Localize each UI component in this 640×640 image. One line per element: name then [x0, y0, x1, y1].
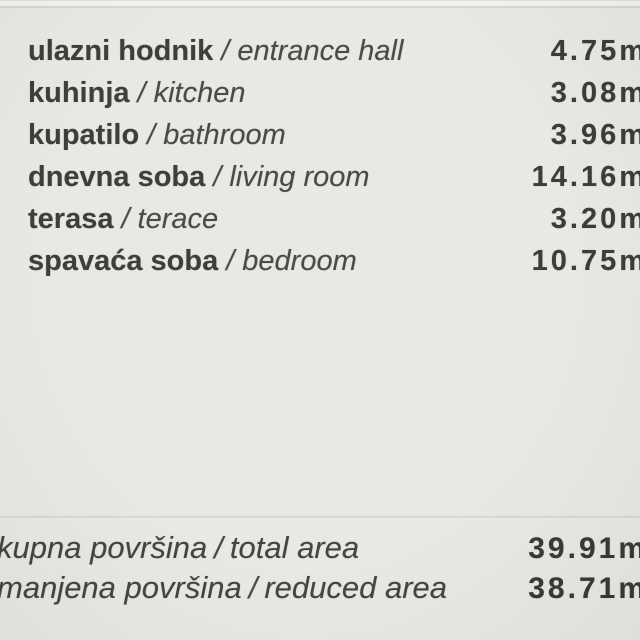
room-name-serbian: kuhinja	[28, 72, 130, 114]
room-name-english: bathroom	[163, 114, 286, 156]
room-area-value: 14.16m	[532, 156, 640, 198]
totals-divider-highlight	[0, 518, 640, 519]
slash-separator: /	[221, 30, 229, 72]
room-row-bathroom: kupatilo / bathroom 3.96m	[0, 114, 640, 156]
total-label-english: total area	[230, 530, 359, 565]
reduced-area-label: manjena površina/reduced area	[0, 568, 447, 608]
room-name-english: terace	[138, 198, 219, 240]
total-label-serbian: kupna površina	[0, 530, 207, 565]
room-name-serbian: dnevna soba	[28, 156, 205, 198]
room-name-serbian: ulazni hodnik	[28, 30, 213, 72]
slash-separator: /	[121, 198, 129, 240]
room-area-value: 3.20m	[551, 198, 640, 240]
total-area-row: kupna površina/total area 39.91m	[0, 528, 640, 568]
room-name-english: bedroom	[242, 240, 356, 282]
reduced-area-value: 38.71m	[528, 569, 640, 609]
total-area-label: kupna površina/total area	[0, 528, 359, 568]
slash-separator: /	[214, 530, 223, 565]
room-name-english: living room	[229, 156, 369, 198]
room-area-list: ulazni hodnik / entrance hall 4.75m kuhi…	[0, 30, 640, 282]
room-area-value: 3.08m	[551, 72, 640, 114]
slash-separator: /	[147, 114, 155, 156]
room-area-value: 3.96m	[551, 114, 640, 156]
room-name-english: kitchen	[154, 72, 246, 114]
room-row-living-room: dnevna soba / living room 14.16m	[0, 156, 640, 198]
slash-separator: /	[249, 570, 258, 605]
top-divider-line	[0, 6, 640, 8]
total-area-value: 39.91m	[528, 529, 640, 569]
room-area-value: 10.75m	[532, 240, 640, 282]
slash-separator: /	[226, 240, 234, 282]
room-name-serbian: spavaća soba	[28, 240, 218, 282]
total-label-english: reduced area	[264, 570, 447, 605]
slash-separator: /	[138, 72, 146, 114]
slash-separator: /	[213, 156, 221, 198]
totals-section: kupna površina/total area 39.91m manjena…	[0, 528, 640, 608]
room-name-serbian: kupatilo	[28, 114, 139, 156]
room-area-value: 4.75m	[551, 30, 640, 72]
room-row-terrace: terasa / terace 3.20m	[0, 198, 640, 240]
room-row-kitchen: kuhinja / kitchen 3.08m	[0, 72, 640, 114]
total-label-serbian: manjena površina	[0, 570, 242, 605]
room-row-bedroom: spavaća soba / bedroom 10.75m	[0, 240, 640, 282]
room-name-serbian: terasa	[28, 198, 113, 240]
reduced-area-row: manjena površina/reduced area 38.71m	[0, 568, 640, 608]
room-name-english: entrance hall	[237, 30, 403, 72]
room-row-entrance-hall: ulazni hodnik / entrance hall 4.75m	[0, 30, 640, 72]
